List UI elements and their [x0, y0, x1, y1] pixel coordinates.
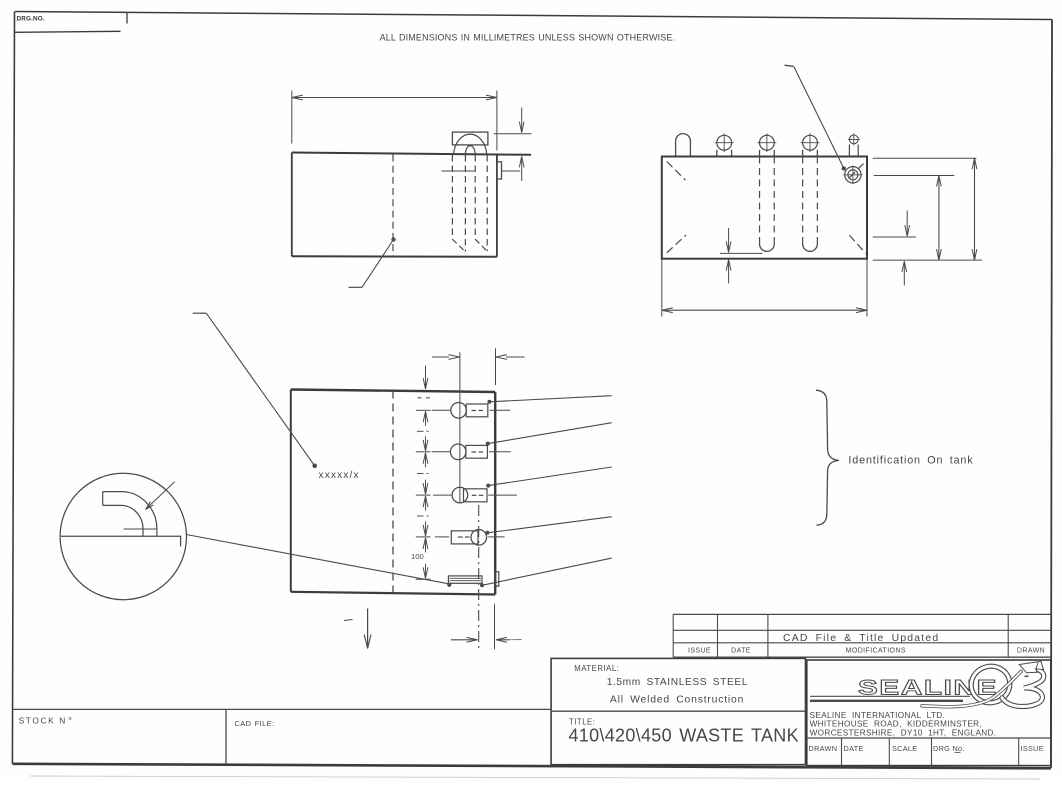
- svg-text:Identification On tank: Identification On tank: [848, 455, 973, 467]
- svg-text:All Welded Construction: All Welded Construction: [610, 694, 744, 705]
- svg-text:ISSUE: ISSUE: [688, 648, 711, 655]
- svg-text:WHITEHOUSE ROAD, KIDDERMINST: WHITEHOUSE ROAD, KIDDERMINSTER,: [810, 720, 982, 729]
- svg-text:DRG No.: DRG No.: [933, 744, 965, 753]
- svg-text:100: 100: [411, 552, 424, 561]
- svg-text:o: o: [69, 716, 72, 722]
- svg-text:SEALINE INTERNATIONAL LTD.: SEALINE INTERNATIONAL LTD.: [810, 711, 946, 720]
- svg-text:DRAWN: DRAWN: [809, 744, 838, 753]
- svg-text:xxxxx/x: xxxxx/x: [319, 470, 360, 481]
- svg-text:DATE: DATE: [844, 744, 864, 753]
- svg-text:CAD File & Title Updated: CAD File & Title Updated: [783, 633, 939, 644]
- svg-text:CAD FILE:: CAD FILE:: [235, 719, 275, 728]
- svg-text:1.5mm STAINLESS STEEL: 1.5mm STAINLESS STEEL: [607, 677, 748, 688]
- svg-text:DRG.NO.: DRG.NO.: [17, 16, 45, 23]
- svg-text:DRAWN: DRAWN: [1017, 648, 1045, 655]
- svg-text:410\420\450 WASTE TANK: 410\420\450 WASTE TANK: [569, 726, 799, 746]
- svg-text:DATE: DATE: [731, 648, 751, 655]
- svg-text:SCALE: SCALE: [892, 744, 917, 753]
- svg-text:MATERIAL:: MATERIAL:: [574, 664, 619, 673]
- svg-text:WORCESTERSHIRE, DY10 1HT, E: WORCESTERSHIRE, DY10 1HT, ENGLAND.: [810, 728, 997, 737]
- svg-text:ISSUE: ISSUE: [1021, 744, 1044, 753]
- svg-text:ALL DIMENSIONS IN MILLIMETR: ALL DIMENSIONS IN MILLIMETRES UNLESS SHO…: [380, 33, 676, 43]
- svg-text:MODIFICATIONS: MODIFICATIONS: [846, 648, 906, 655]
- svg-text:STOCK N: STOCK N: [19, 716, 67, 726]
